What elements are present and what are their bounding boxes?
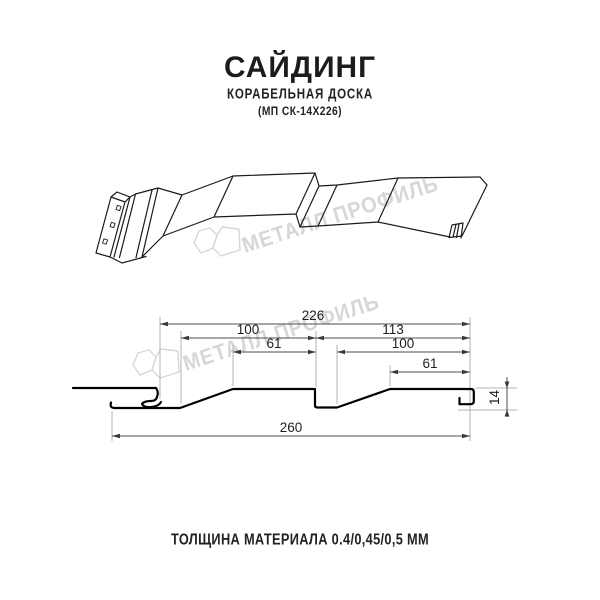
dim-label-61-left: 61: [266, 336, 281, 351]
nail-strip: [96, 192, 130, 257]
product-code: (МП СК-14Х226): [258, 104, 342, 118]
dim-label-113: 113: [382, 322, 404, 337]
dim-label-61-right: 61: [422, 356, 437, 371]
dimension-arrows: [112, 322, 509, 438]
metall-profil-logo-icon: [133, 349, 179, 378]
lock-curl: [142, 388, 161, 407]
metall-profil-logo-icon: [194, 227, 240, 256]
panel-end-hook: [449, 177, 487, 238]
profile-outline: [111, 389, 474, 408]
page-title: САЙДИНГ: [224, 50, 376, 84]
extension-lines: [112, 317, 517, 441]
watermark-brand-text: МЕТАЛЛ ПРОФИЛЬ: [239, 171, 442, 258]
dim-label-14: 14: [487, 390, 502, 406]
lock-fold: [110, 188, 182, 263]
page-subtitle: КОРАБЕЛЬНАЯ ДОСКА: [227, 87, 373, 103]
product-diagram-page: МЕТАЛЛ ПРОФИЛЬ МЕТАЛЛ ПРОФИЛЬ САЙДИНГ КО…: [0, 0, 600, 600]
thickness-note: ТОЛЩИНА МАТЕРИАЛА 0.4/0,45/0,5 ММ: [171, 532, 429, 549]
watermark-brand-text: МЕТАЛЛ ПРОФИЛЬ: [180, 289, 383, 376]
dim-label-100-right: 100: [392, 336, 415, 351]
diagram-canvas: МЕТАЛЛ ПРОФИЛЬ МЕТАЛЛ ПРОФИЛЬ САЙДИНГ КО…: [0, 0, 600, 600]
dim-label-226: 226: [302, 308, 325, 323]
dimension-lines: [112, 324, 507, 436]
dim-label-260: 260: [280, 420, 303, 435]
dim-label-100-left: 100: [237, 322, 260, 337]
